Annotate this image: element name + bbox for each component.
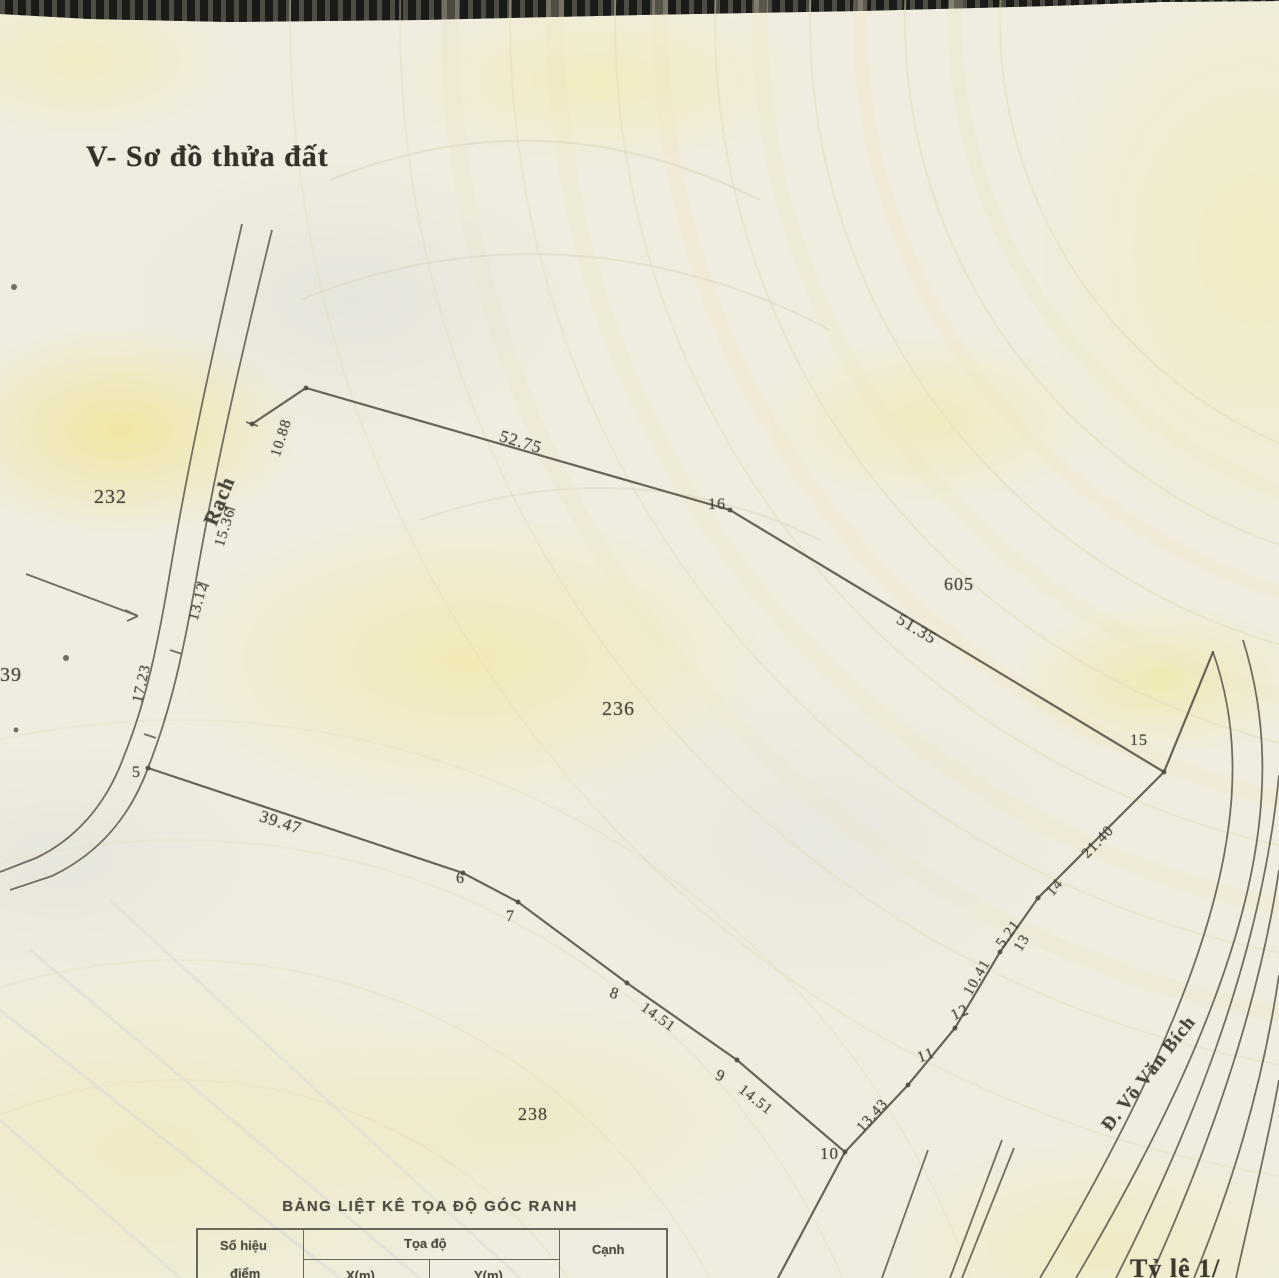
vertex-dots [146,386,1167,1155]
parcel-label-39: 39 [0,664,22,687]
col-header-point-no: Số hiệu [220,1238,267,1253]
table-divider [303,1230,304,1278]
parcel-label-236: 236 [602,698,635,721]
col-header-point-no-2: điểm [230,1266,260,1278]
col-header-x: X(m) [346,1268,375,1278]
scale-note: Tỷ lệ 1/ [1130,1254,1220,1278]
vertex-label-7: 7 [506,908,515,926]
parcel-label-232: 232 [94,486,127,509]
leader-arrow [26,574,138,621]
parcel-sketch-svg [0,0,1279,1278]
table-divider [559,1230,560,1278]
coordinate-table-title: BẢNG LIỆT KÊ TỌA ĐỘ GÓC RANH [196,1198,664,1215]
contour-texture [0,0,1279,1278]
table-divider [429,1259,430,1278]
vertex-label-6: 6 [456,870,465,888]
vertex-label-5: 5 [132,764,141,782]
col-header-coordinates: Tọa độ [404,1236,447,1251]
parcel-label-605: 605 [944,574,974,595]
col-header-edge: Cạnh [592,1242,625,1257]
canal-lines [0,224,272,890]
table-divider [303,1259,559,1260]
section-title: V- Sơ đồ thửa đất [86,140,329,174]
scanned-land-document-page: V- Sơ đồ thửa đất 232 39 236 605 238 Rạc… [0,0,1279,1278]
coordinate-table: Số hiệu điểm Tọa độ X(m) Y(m) Cạnh [196,1228,668,1278]
vertex-label-15: 15 [1130,732,1148,750]
parcel-label-238: 238 [518,1104,548,1125]
vertex-label-16: 16 [708,496,726,514]
vertex-label-10: 10 [820,1144,839,1164]
col-header-y: Y(m) [474,1268,503,1278]
